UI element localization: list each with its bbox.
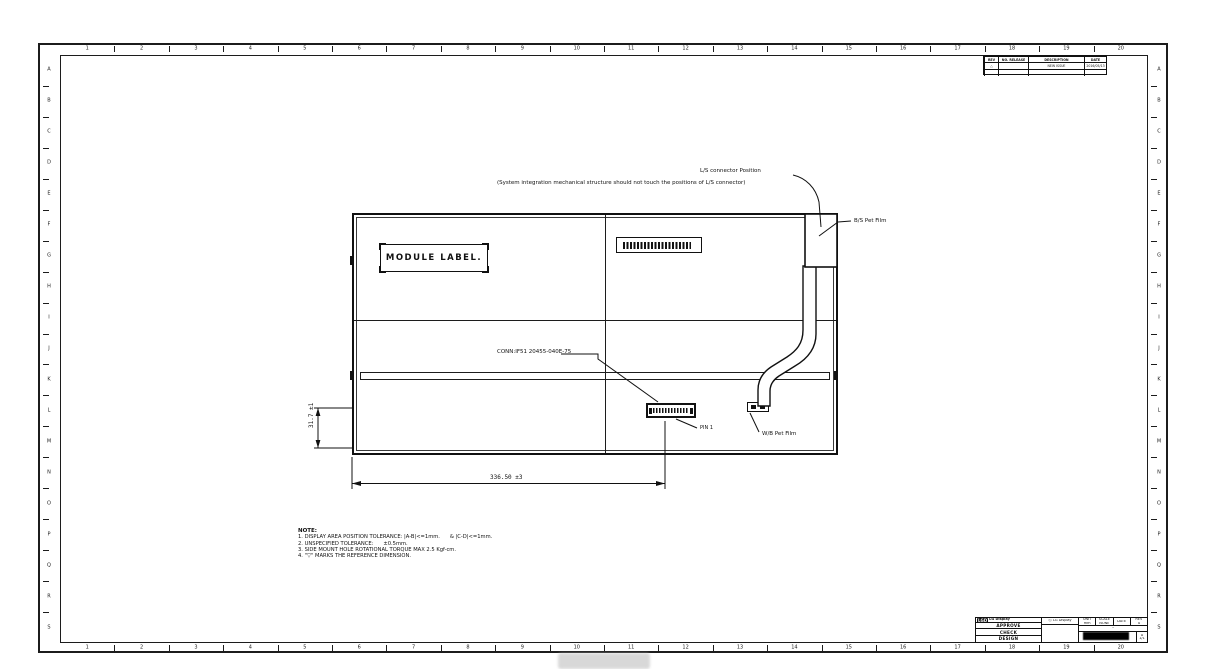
- zone-row-label: I: [1158, 316, 1159, 321]
- zone-tick: [169, 46, 170, 52]
- note-line: 4. "▽" MARKS THE REFERENCE DIMENSION.: [298, 553, 518, 559]
- sign-row: DESIGN: [976, 636, 1041, 642]
- height-dimension-value: 31.7 ±1: [308, 403, 315, 428]
- connector-part-number-note: CONN:IF51 20455-040E-75: [497, 349, 571, 355]
- zone-tick: [43, 86, 49, 87]
- zone-tick: [114, 645, 115, 651]
- zone-tick: [332, 645, 333, 651]
- zone-tick: [43, 550, 49, 551]
- zone-tick: [1151, 210, 1157, 211]
- zone-row-label: D: [47, 161, 51, 166]
- copyright-text: ⓒ LG Display: [1048, 619, 1071, 623]
- zone-tick: [930, 46, 931, 52]
- sheet-value: 1/1: [1139, 637, 1145, 641]
- zone-col-label: 19: [1063, 47, 1069, 52]
- zone-col-label: 14: [791, 47, 797, 52]
- module-center-section-line: [605, 215, 606, 453]
- label-corner-icon: [482, 266, 489, 273]
- zone-tick: [386, 46, 387, 52]
- zone-row-label: R: [1157, 594, 1160, 599]
- revision-cell: 2016/05/13: [1084, 62, 1106, 69]
- zone-tick: [43, 210, 49, 211]
- zone-col-label: 4: [249, 646, 252, 651]
- pull-tab-pad-icon: [751, 405, 756, 409]
- zone-tick: [604, 645, 605, 651]
- bottom-strip-line-2: [360, 379, 830, 380]
- zone-tick: [43, 519, 49, 520]
- zone-row-label: J: [48, 347, 49, 352]
- zone-row-label: E: [1157, 192, 1160, 197]
- zone-tick: [223, 645, 224, 651]
- zone-row-label: N: [47, 470, 51, 475]
- zone-col-label: 15: [846, 47, 852, 52]
- zone-col-label: 17: [954, 47, 960, 52]
- info-cell: SCALENONE: [1095, 618, 1112, 625]
- zone-row-label: J: [1158, 347, 1159, 352]
- sign-label: DESIGN: [999, 636, 1019, 641]
- info-value: A: [1138, 622, 1140, 626]
- revision-cell: [998, 69, 1028, 76]
- zone-tick: [495, 645, 496, 651]
- zone-col-label: 1: [86, 47, 89, 52]
- zone-col-label: 16: [900, 646, 906, 651]
- zone-tick: [114, 46, 115, 52]
- label-corner-icon: [379, 243, 386, 250]
- info-label: DATE: [1117, 620, 1126, 624]
- sign-label: APPROVE: [996, 623, 1020, 628]
- zone-tick: [876, 645, 877, 651]
- zone-row-label: O: [1157, 501, 1161, 506]
- zone-col-label: 18: [1009, 47, 1015, 52]
- connector-tab-icon: [690, 408, 693, 414]
- zone-col-label: 14: [791, 646, 797, 651]
- zone-tick: [1151, 86, 1157, 87]
- zone-tick: [930, 645, 931, 651]
- zone-col-label: 5: [303, 47, 306, 52]
- zone-col-label: 6: [358, 646, 361, 651]
- zone-tick: [43, 426, 49, 427]
- sign-label: CHECK: [1000, 630, 1017, 635]
- zone-row-label: B: [1157, 99, 1160, 104]
- label-corner-icon: [379, 266, 386, 273]
- zone-row-label: H: [47, 285, 51, 290]
- zone-row-label: C: [47, 130, 51, 135]
- zone-tick: [985, 645, 986, 651]
- info-cells-row: UNITmmSCALENONEDATEREVA: [1079, 618, 1147, 626]
- zone-row-label: M: [47, 439, 51, 444]
- revision-cell: [1028, 69, 1084, 76]
- bottom-strip-end-left: [360, 372, 361, 380]
- zone-tick: [604, 46, 605, 52]
- module-label-box: MODULE LABEL.: [380, 244, 488, 272]
- zone-row-label: L: [48, 408, 51, 413]
- zone-tick: [1039, 46, 1040, 52]
- company-name: LG Display: [989, 618, 1010, 622]
- zone-row-label: S: [1157, 625, 1160, 630]
- zone-tick: [1039, 645, 1040, 651]
- zone-col-label: 3: [194, 47, 197, 52]
- zone-tick: [43, 179, 49, 180]
- zone-tick: [767, 46, 768, 52]
- zone-tick: [1151, 364, 1157, 365]
- zone-tick: [1151, 303, 1157, 304]
- zone-col-label: 1: [86, 646, 89, 651]
- zone-col-label: 8: [466, 47, 469, 52]
- zone-row-label: P: [47, 532, 50, 537]
- zone-tick: [43, 612, 49, 613]
- zone-row-label: F: [1158, 223, 1161, 228]
- zone-col-label: 10: [574, 646, 580, 651]
- revision-table: REVNO. RELEASEDESCRIPTIONDATE△NEW ISSUE2…: [983, 55, 1107, 75]
- redacted-model-name: [1083, 632, 1129, 640]
- zone-tick: [43, 303, 49, 304]
- zone-tick: [658, 46, 659, 52]
- zone-tick: [1151, 550, 1157, 551]
- sign-rows: APPROVECHECKDESIGN: [976, 623, 1041, 642]
- zone-tick: [985, 46, 986, 52]
- zone-col-label: 7: [412, 47, 415, 52]
- ls-connector-position-note: L/S connector Position: [700, 168, 761, 174]
- zone-row-label: N: [1157, 470, 1161, 475]
- zone-tick: [332, 46, 333, 52]
- zone-col-label: 7: [412, 646, 415, 651]
- zone-row-label: P: [1157, 532, 1160, 537]
- zone-row-label: O: [47, 501, 51, 506]
- zone-col-label: 15: [846, 646, 852, 651]
- mount-mark-left-bottom: [350, 371, 354, 380]
- zone-row-label: Q: [1157, 563, 1161, 568]
- zone-tick: [43, 364, 49, 365]
- module-label-text: MODULE LABEL.: [386, 253, 482, 263]
- zone-tick: [550, 645, 551, 651]
- width-dimension-value: 336.50 ±3: [490, 474, 523, 481]
- revision-cell: [1084, 69, 1106, 76]
- revision-cell: [984, 69, 998, 76]
- zone-col-label: 4: [249, 47, 252, 52]
- zone-tick: [441, 645, 442, 651]
- zone-row-label: K: [1157, 377, 1160, 382]
- zone-col-label: 13: [737, 646, 743, 651]
- note-line: 1. DISPLAY AREA POSITION TOLERANCE: |A-B…: [298, 534, 518, 540]
- zone-col-label: 2: [140, 47, 143, 52]
- zone-col-label: 13: [737, 47, 743, 52]
- zone-tick: [43, 457, 49, 458]
- zone-row-label: F: [48, 223, 51, 228]
- zone-row-label: R: [47, 594, 50, 599]
- zone-tick: [1151, 426, 1157, 427]
- zone-col-label: 11: [628, 47, 634, 52]
- zone-tick: [1151, 581, 1157, 582]
- watermark-smudge: [558, 653, 650, 669]
- zone-row-label: L: [1158, 408, 1161, 413]
- bs-pet-film-note: B/S Pet Film: [854, 218, 886, 224]
- notes-block: NOTE:1. DISPLAY AREA POSITION TOLERANCE:…: [298, 528, 518, 559]
- mount-mark-left-top: [350, 256, 354, 265]
- zone-tick: [278, 46, 279, 52]
- zone-col-label: 10: [574, 47, 580, 52]
- info-cell: UNITmm: [1079, 618, 1095, 625]
- zone-tick: [1151, 519, 1157, 520]
- zone-tick: [1151, 117, 1157, 118]
- title-block-copyright-column: ⓒ LG Display: [1042, 618, 1079, 642]
- zone-col-label: 9: [521, 47, 524, 52]
- signature-space: [1042, 625, 1078, 642]
- zone-col-label: 3: [194, 646, 197, 651]
- zone-tick: [43, 488, 49, 489]
- zone-tick: [713, 645, 714, 651]
- zone-tick: [822, 46, 823, 52]
- revision-cell: △: [984, 62, 998, 69]
- interface-connector: [646, 403, 696, 418]
- zone-row-label: K: [47, 377, 50, 382]
- zone-tick: [713, 46, 714, 52]
- zone-tick: [1151, 272, 1157, 273]
- zone-col-label: 12: [682, 646, 688, 651]
- bottom-strip-line-1: [360, 372, 830, 373]
- module-horizontal-line: [354, 320, 836, 321]
- zone-tick: [1094, 645, 1095, 651]
- zone-col-label: 16: [900, 47, 906, 52]
- system-integration-note: (System integration mechanical structure…: [497, 180, 745, 186]
- label-corner-icon: [482, 243, 489, 250]
- info-cell: DATE: [1113, 618, 1130, 625]
- zone-row-label: D: [1157, 161, 1161, 166]
- zone-tick: [876, 46, 877, 52]
- zone-row-label: E: [47, 192, 50, 197]
- zone-tick: [822, 645, 823, 651]
- zone-row-label: A: [47, 68, 50, 73]
- pull-tab-pad-icon: [760, 405, 765, 409]
- zone-col-label: 2: [140, 646, 143, 651]
- zone-tick: [658, 645, 659, 651]
- mount-mark-right-bottom: [834, 371, 838, 380]
- zone-tick: [1151, 612, 1157, 613]
- zone-col-label: 5: [303, 646, 306, 651]
- pin1-note: PIN 1: [700, 426, 713, 432]
- zone-col-label: 11: [628, 646, 634, 651]
- lot-id-barcode-label: [616, 237, 702, 253]
- zone-tick: [550, 46, 551, 52]
- zone-tick: [43, 241, 49, 242]
- zone-col-label: 20: [1118, 646, 1124, 651]
- zone-tick: [278, 645, 279, 651]
- zone-col-label: 18: [1009, 646, 1015, 651]
- zone-tick: [1151, 179, 1157, 180]
- zone-col-label: 6: [358, 47, 361, 52]
- zone-col-label: 12: [682, 47, 688, 52]
- zone-row-label: G: [47, 254, 51, 259]
- zone-row-label: I: [48, 316, 49, 321]
- zone-tick: [441, 46, 442, 52]
- zone-tick: [43, 148, 49, 149]
- zone-col-label: 9: [521, 646, 524, 651]
- wb-pet-film-note: W/B Pet Film: [762, 431, 796, 437]
- info-cell: REVA: [1130, 618, 1147, 625]
- zone-tick: [169, 645, 170, 651]
- pull-tab-part: [747, 402, 769, 412]
- zone-row-label: Q: [47, 563, 51, 568]
- zone-tick: [1151, 334, 1157, 335]
- info-value: mm: [1084, 622, 1091, 626]
- connector-tab-icon: [649, 408, 652, 414]
- mount-mark-right-top: [834, 256, 838, 265]
- zone-tick: [43, 395, 49, 396]
- zone-col-label: 8: [466, 646, 469, 651]
- company-logo: LGD: [977, 618, 988, 623]
- zone-tick: [43, 581, 49, 582]
- zone-col-label: 20: [1118, 47, 1124, 52]
- zone-tick: [43, 117, 49, 118]
- zone-tick: [223, 46, 224, 52]
- barcode-icon: [623, 242, 691, 249]
- zone-tick: [1151, 148, 1157, 149]
- drawing-sheet: 1122334455667788991010111112121313141415…: [0, 0, 1208, 669]
- connector-pins-icon: [653, 408, 689, 413]
- zone-tick: [767, 645, 768, 651]
- zone-tick: [43, 334, 49, 335]
- zone-row-label: H: [1157, 285, 1161, 290]
- zone-row-label: C: [1157, 130, 1161, 135]
- zone-tick: [1151, 457, 1157, 458]
- zone-tick: [386, 645, 387, 651]
- bottom-strip-end-right: [829, 372, 830, 380]
- zone-row-label: M: [1157, 439, 1161, 444]
- zone-tick: [495, 46, 496, 52]
- zone-tick: [1094, 46, 1095, 52]
- revision-cell: NEW ISSUE: [1028, 62, 1084, 69]
- zone-tick: [1151, 241, 1157, 242]
- zone-row-label: A: [1157, 68, 1160, 73]
- title-block-sign-column: LGD LG Display APPROVECHECKDESIGN: [976, 618, 1042, 642]
- zone-col-label: 17: [954, 646, 960, 651]
- drawing-title-value: -: [1112, 626, 1114, 631]
- zone-col-label: 19: [1063, 646, 1069, 651]
- info-value: NONE: [1099, 622, 1109, 626]
- revision-cell: [998, 62, 1028, 69]
- zone-row-label: G: [1157, 254, 1161, 259]
- zone-tick: [43, 272, 49, 273]
- zone-row-label: B: [47, 99, 50, 104]
- zone-tick: [1151, 488, 1157, 489]
- zone-tick: [1151, 395, 1157, 396]
- zone-row-label: S: [47, 625, 50, 630]
